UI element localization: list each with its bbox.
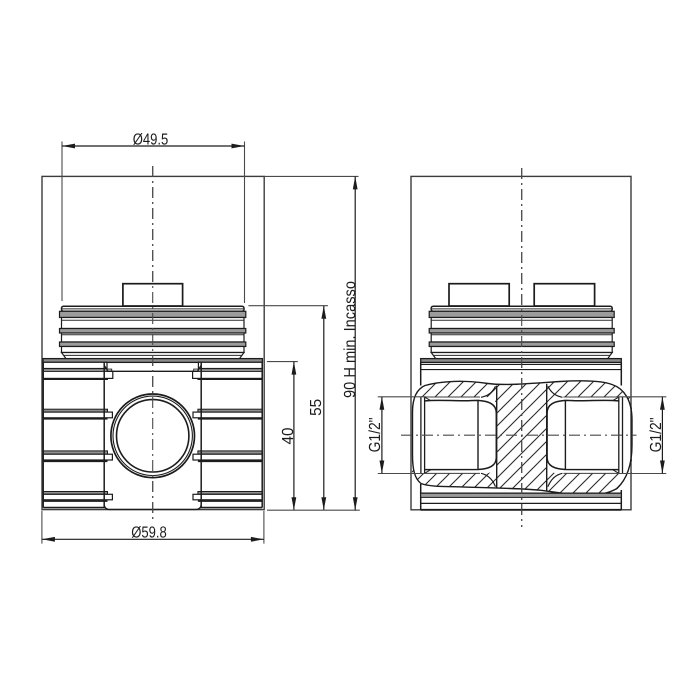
svg-text:G1/2": G1/2" [648, 417, 665, 452]
svg-text:40: 40 [280, 427, 297, 444]
svg-text:Ø59.8: Ø59.8 [131, 524, 167, 541]
svg-text:G1/2": G1/2" [367, 417, 384, 452]
svg-text:90 H min. Incasso: 90 H min. Incasso [342, 281, 359, 398]
svg-text:55: 55 [308, 399, 325, 416]
svg-text:Ø49.5: Ø49.5 [133, 132, 169, 149]
